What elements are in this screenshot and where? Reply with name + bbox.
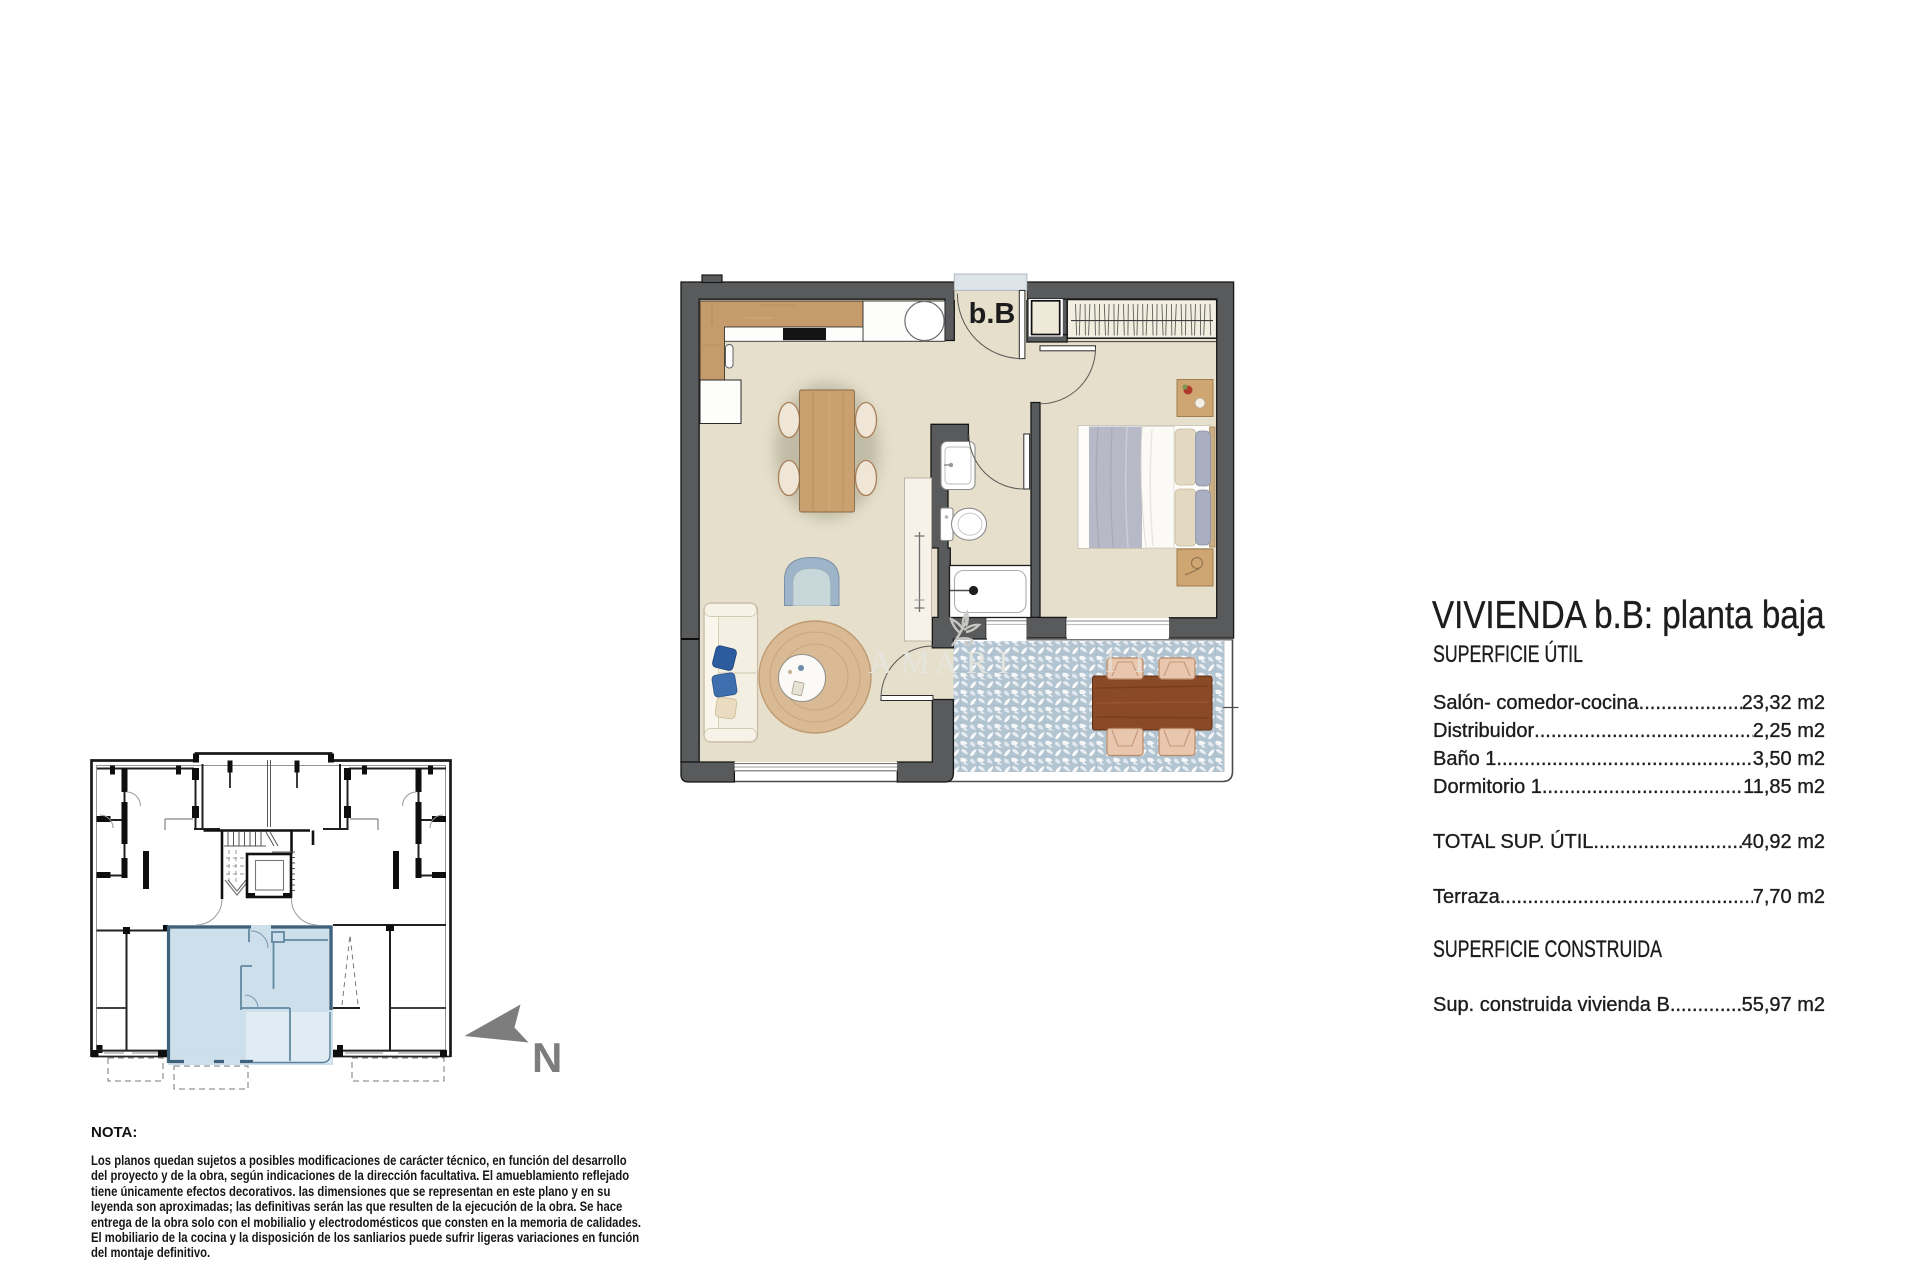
svg-text:I: I xyxy=(1105,643,1116,679)
svg-text:R: R xyxy=(966,644,988,680)
svg-text:N: N xyxy=(532,1034,562,1081)
svg-text:I: I xyxy=(998,644,1009,680)
svg-text:A: A xyxy=(869,644,892,680)
svg-text:M: M xyxy=(901,644,929,680)
svg-text:b.B: b.B xyxy=(969,298,1016,330)
svg-text:I: I xyxy=(1134,643,1145,679)
svg-text:A: A xyxy=(934,644,957,680)
